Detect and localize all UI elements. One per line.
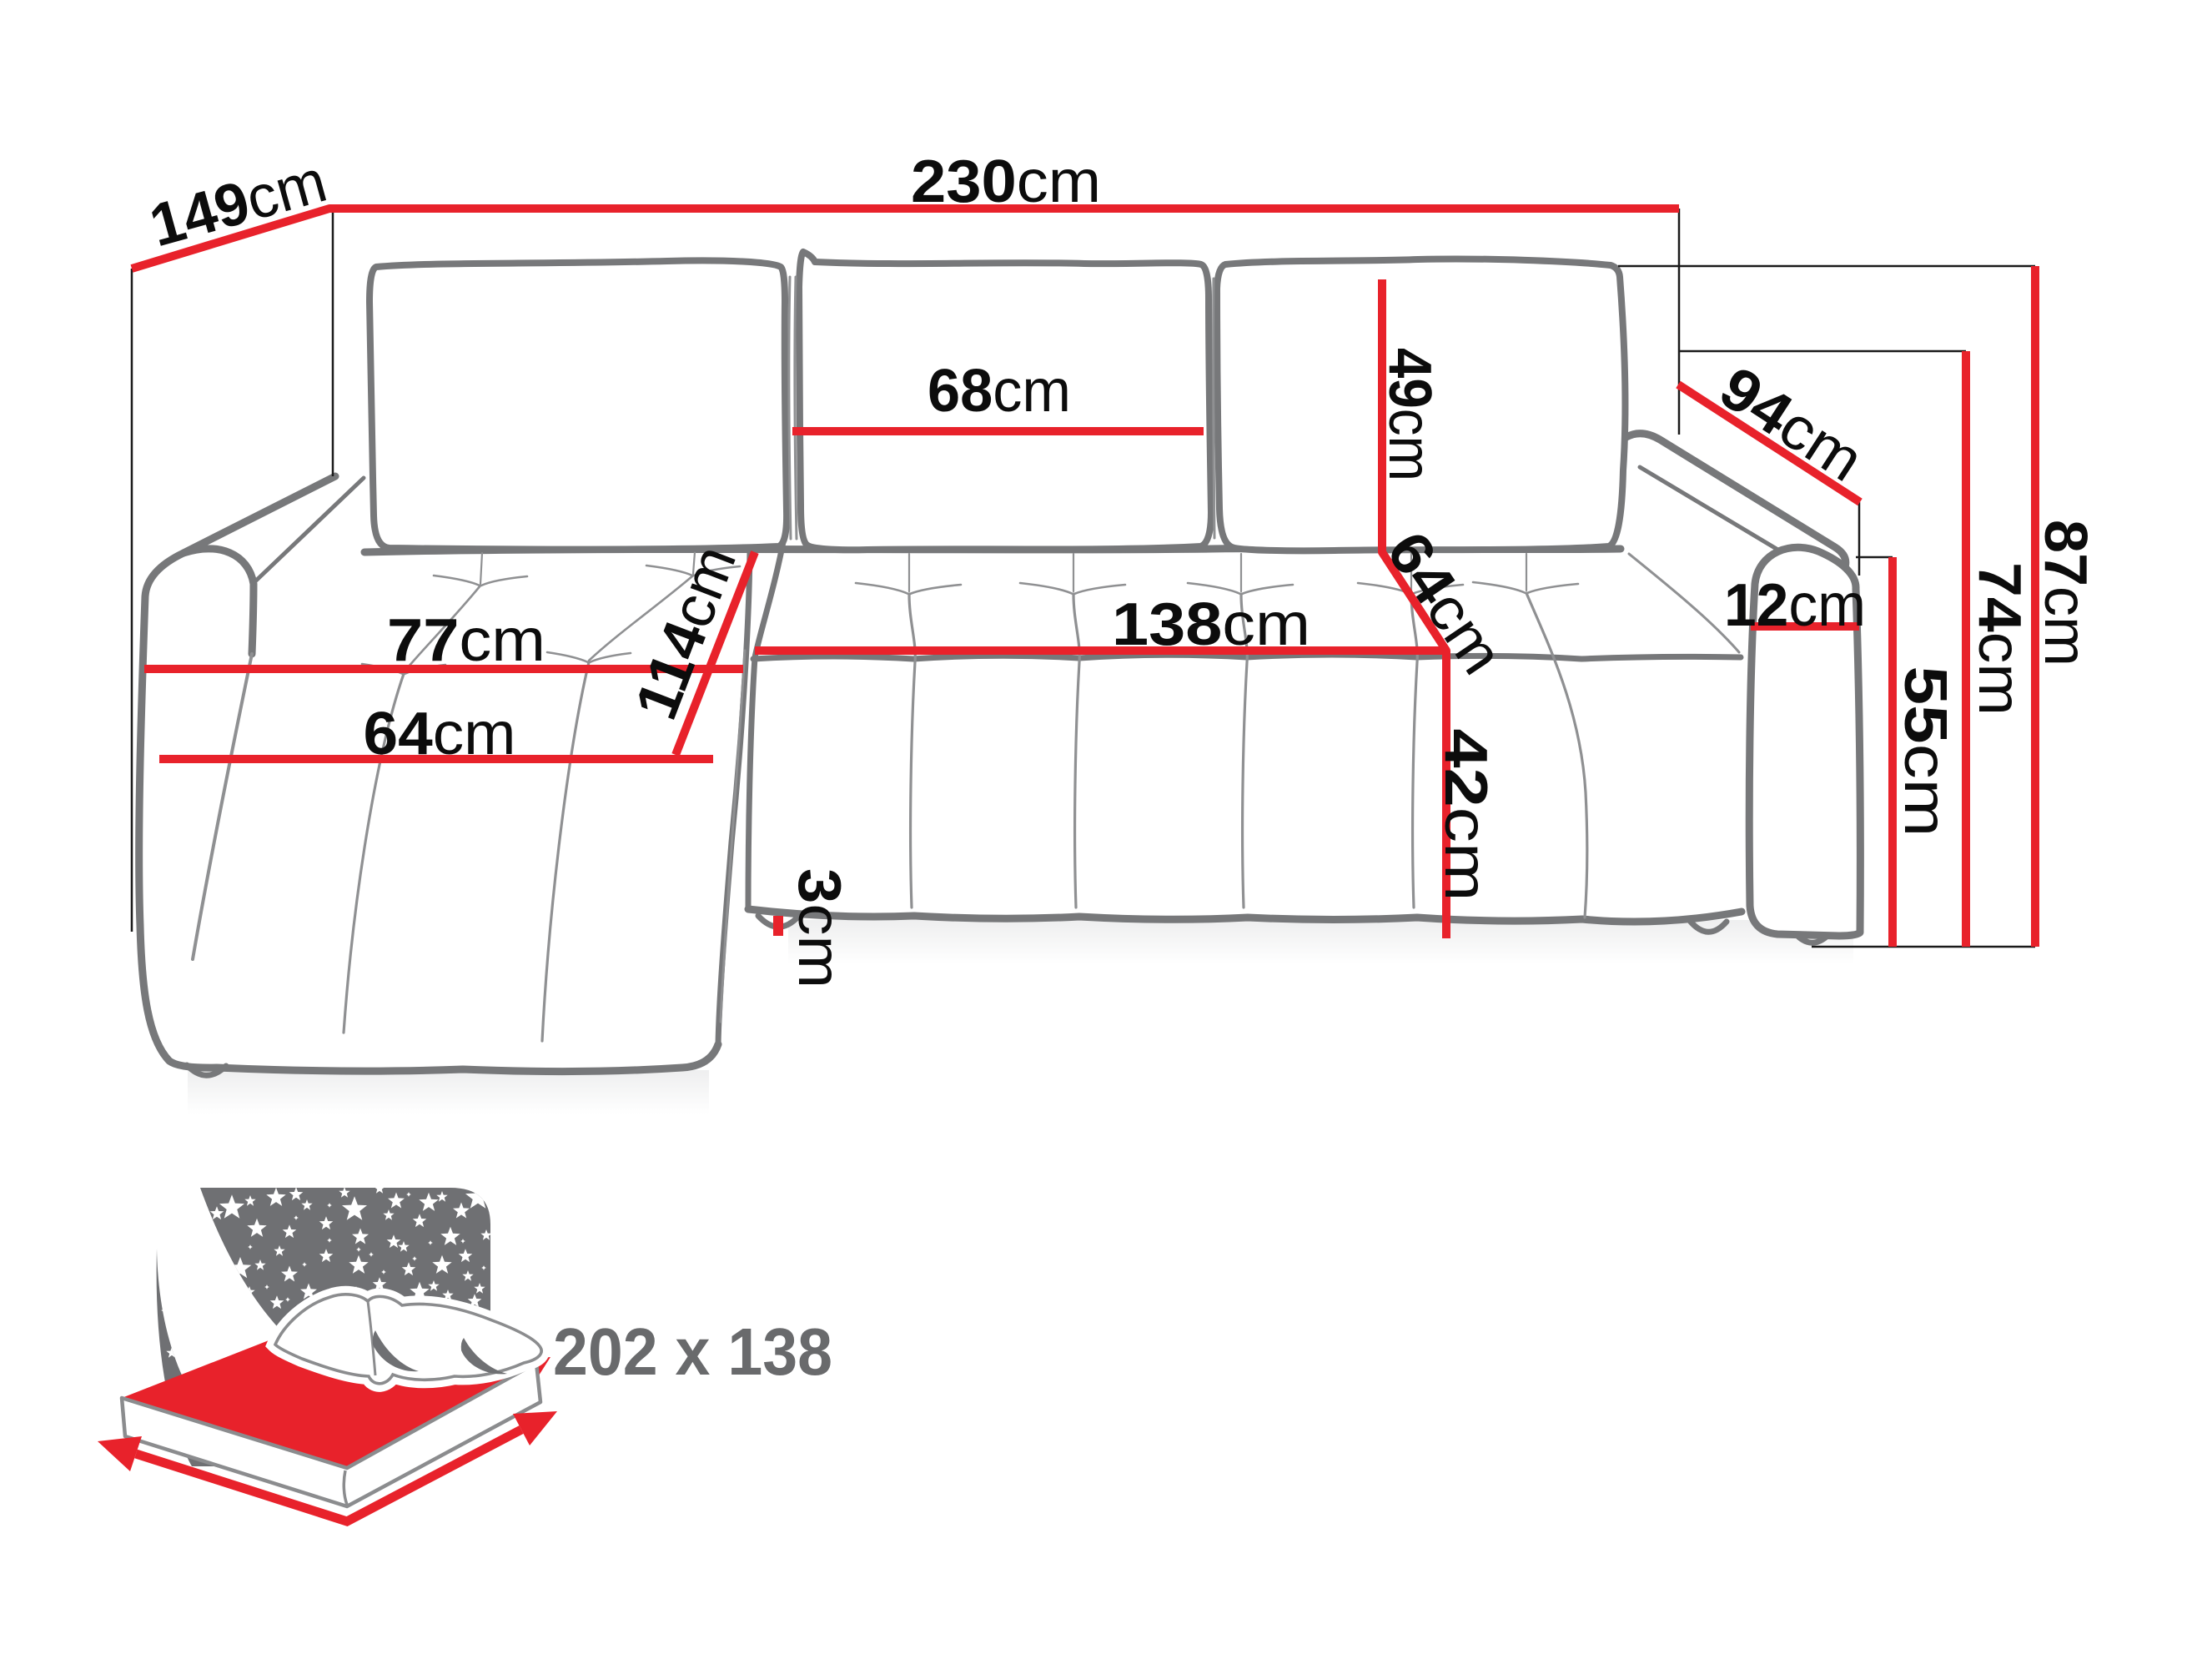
svg-text:68cm: 68cm [928, 358, 1071, 425]
svg-text:12cm: 12cm [1724, 572, 1866, 639]
svg-text:202 x 138: 202 x 138 [553, 1315, 832, 1389]
svg-text:49cm: 49cm [1376, 348, 1443, 481]
svg-text:42cm: 42cm [1432, 729, 1499, 902]
svg-text:138cm: 138cm [1112, 591, 1310, 658]
svg-text:87cm: 87cm [2032, 520, 2099, 666]
svg-text:230cm: 230cm [911, 148, 1101, 215]
svg-text:55cm: 55cm [1892, 666, 1958, 837]
svg-text:77cm: 77cm [387, 607, 545, 674]
svg-text:3cm: 3cm [786, 868, 852, 988]
svg-text:74cm: 74cm [1966, 562, 2033, 716]
svg-text:64cm: 64cm [364, 701, 516, 767]
